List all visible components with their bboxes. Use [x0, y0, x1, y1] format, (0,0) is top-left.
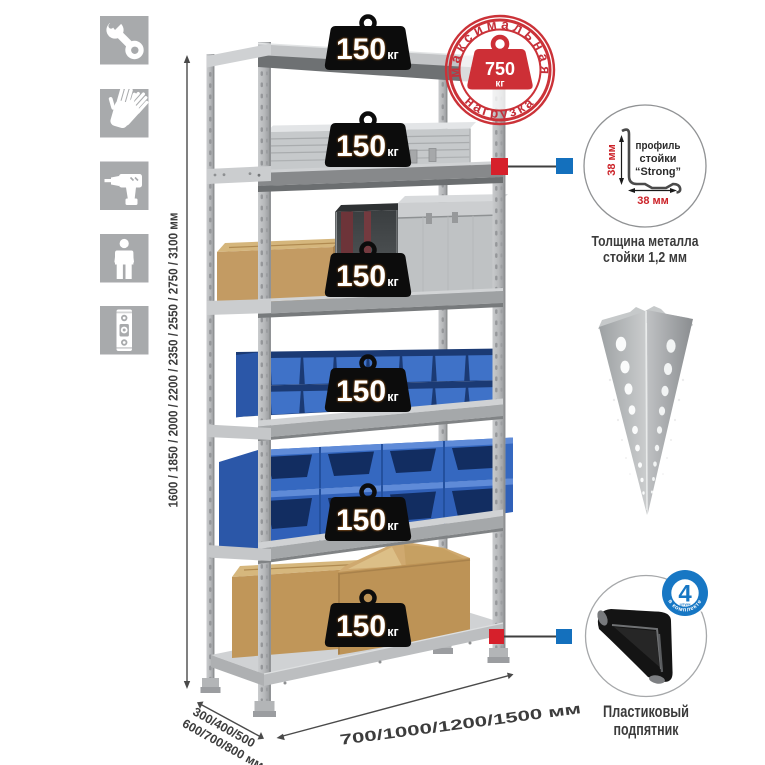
svg-text:750: 750 — [485, 59, 515, 79]
svg-text:кг: кг — [387, 145, 398, 159]
svg-text:кг: кг — [387, 48, 398, 62]
svg-text:кг: кг — [495, 79, 504, 90]
svg-text:150: 150 — [336, 33, 386, 66]
svg-text:стойки: стойки — [640, 153, 677, 165]
svg-text:стойки 1,2 мм: стойки 1,2 мм — [603, 249, 687, 266]
svg-text:38 мм: 38 мм — [606, 144, 618, 176]
svg-text:150: 150 — [336, 260, 386, 293]
svg-text:38 мм: 38 мм — [637, 195, 669, 207]
svg-text:150: 150 — [336, 130, 386, 163]
svg-text:150: 150 — [336, 610, 386, 643]
svg-text:профиль: профиль — [636, 140, 681, 152]
svg-text:1600 / 1850 / 2000 / 2200 / 23: 1600 / 1850 / 2000 / 2200 / 2350 / 2550 … — [166, 213, 181, 508]
svg-text:Толщина металла: Толщина металла — [592, 233, 700, 250]
svg-text:Пластиковый: Пластиковый — [603, 703, 689, 721]
svg-text:кг: кг — [387, 390, 398, 404]
svg-text:кг: кг — [387, 275, 398, 289]
svg-text:кг: кг — [387, 625, 398, 639]
svg-text:150: 150 — [336, 375, 386, 408]
svg-text:кг: кг — [387, 519, 398, 533]
svg-text:подпятник: подпятник — [614, 721, 680, 739]
svg-text:“Strong”: “Strong” — [635, 166, 681, 178]
svg-text:150: 150 — [336, 504, 386, 537]
svg-text:штуки: штуки — [680, 603, 691, 607]
